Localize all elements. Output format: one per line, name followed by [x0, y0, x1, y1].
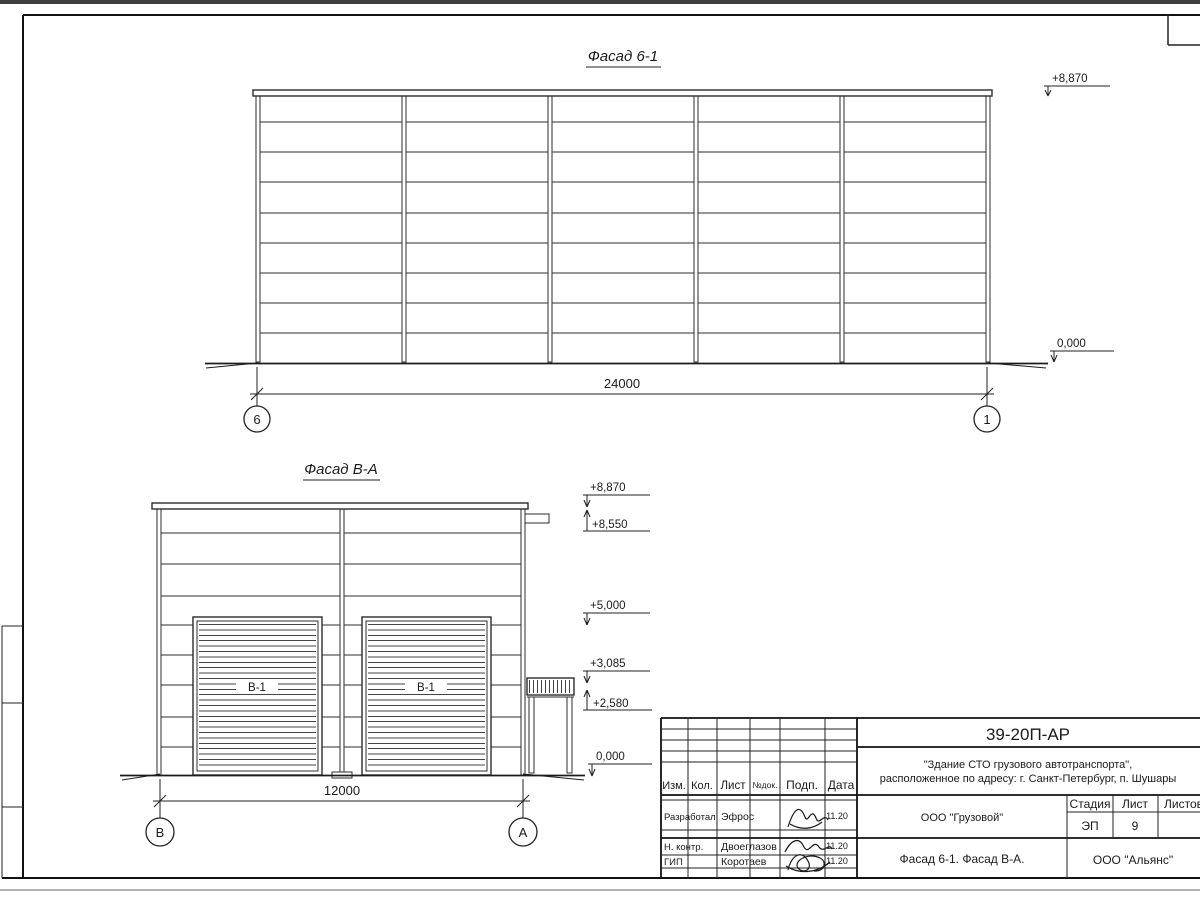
svg-text:Н. контр.: Н. контр.: [664, 842, 703, 853]
doc-title: Фасад 6-1. Фасад В-А.: [900, 852, 1025, 866]
axis-B: В: [156, 825, 165, 840]
svg-text:ГИП: ГИП: [664, 857, 683, 868]
facade2-elev-zero: 0,000: [588, 751, 652, 776]
facade1-columns: [256, 96, 990, 362]
axis-6: 6: [253, 412, 260, 427]
svg-text:11.20: 11.20: [826, 841, 848, 851]
frame-corner-box: [1168, 15, 1200, 45]
object-name-line2: расположенное по адресу: г. Санкт-Петерб…: [880, 773, 1177, 785]
doc-code: 39-20П-АР: [986, 725, 1070, 744]
facade1-panel-lines: [258, 122, 988, 333]
titleblock-header-row: Изм. Кол. Лист №док. Подп. Дата: [662, 778, 854, 792]
svg-text:11.20: 11.20: [826, 811, 848, 821]
facade1-elev-zero: 0,000: [1050, 338, 1114, 362]
svg-text:Дата: Дата: [828, 778, 855, 792]
svg-text:Лист: Лист: [721, 780, 747, 792]
svg-text:Изм.: Изм.: [662, 780, 686, 792]
facade2-elev-mid: +5,000: [583, 600, 650, 625]
gate2-label: В-1: [405, 681, 447, 694]
svg-text:№док.: №док.: [753, 780, 778, 790]
gate1-label: В-1: [236, 681, 278, 694]
facade2-elev-roof: +8,870: [583, 482, 650, 507]
svg-text:Подп.: Подп.: [786, 778, 818, 792]
signature-developer: [788, 809, 828, 828]
svg-text:+2,580: +2,580: [593, 698, 629, 710]
sheet-frame: [2, 15, 1200, 878]
sheet-label: Лист: [1122, 797, 1149, 811]
axis-1: 1: [983, 412, 990, 427]
svg-text:Коротаев: Коротаев: [721, 856, 767, 868]
facade1-parapet-cap: [253, 90, 992, 96]
sheet-number: 9: [1132, 819, 1139, 833]
svg-text:+8,550: +8,550: [592, 519, 628, 531]
svg-text:+5,000: +5,000: [590, 600, 626, 612]
facade1-elev-roof: +8,870: [1044, 73, 1110, 96]
object-name-line1: "Здание СТО грузового автотранспорта",: [924, 759, 1133, 771]
facade2-elev-canopy-top: +3,085: [583, 658, 650, 683]
facade2-parapet-cap: [152, 503, 528, 509]
sheets-label: Листов: [1164, 797, 1200, 811]
svg-text:Разработал: Разработал: [664, 812, 716, 823]
drawing-sheet: Фасад 6-1: [0, 0, 1200, 900]
titleblock-row-ncontrol: Н. контр. Двоеглазов 11.20: [664, 841, 848, 853]
stage-value: ЭП: [1081, 819, 1098, 833]
drawing-canvas: Фасад 6-1: [0, 0, 1200, 900]
facade1-title: Фасад 6-1: [588, 48, 658, 65]
facade2-dimension-value: 12000: [324, 783, 360, 798]
sheet-bottom-edge: [0, 889, 1200, 891]
gate1-roller-shutter: [199, 624, 316, 769]
axis-A: А: [519, 825, 528, 840]
facade1-axis-markers: 6 1: [244, 406, 1000, 432]
facade1-ground-line: [205, 363, 1048, 368]
svg-text:+8,870: +8,870: [590, 482, 626, 494]
titleblock-row-developer: Разработал Эфрос 11.20: [664, 811, 848, 823]
facade2-roof-outlet: [525, 514, 549, 523]
svg-text:Эфрос: Эфрос: [721, 811, 754, 823]
svg-text:0,000: 0,000: [596, 751, 625, 763]
svg-text:11.20: 11.20: [826, 856, 848, 866]
facade2-title: Фасад В-А: [304, 461, 378, 478]
facade2-elev-parapet: +8,550: [583, 510, 650, 531]
facade1-dimension-value: 24000: [604, 376, 640, 391]
svg-text:+8,870: +8,870: [1052, 73, 1088, 85]
client-name: ООО "Грузовой": [921, 812, 1003, 824]
svg-text:Двоеглазов: Двоеглазов: [721, 841, 777, 853]
stage-label: Стадия: [1070, 797, 1111, 811]
gate2-roller-shutter: [368, 624, 485, 769]
company-name: ООО "Альянс": [1093, 853, 1173, 867]
svg-text:0,000: 0,000: [1057, 338, 1086, 350]
canopy-fascia-hatch: [529, 680, 572, 693]
svg-text:Кол.: Кол.: [691, 780, 713, 792]
facade2-axis-markers: В А: [146, 818, 537, 846]
facade2-elev-canopy: +2,580: [583, 690, 652, 710]
svg-text:+3,085: +3,085: [590, 658, 626, 670]
frame-margin-cells: [2, 626, 23, 878]
